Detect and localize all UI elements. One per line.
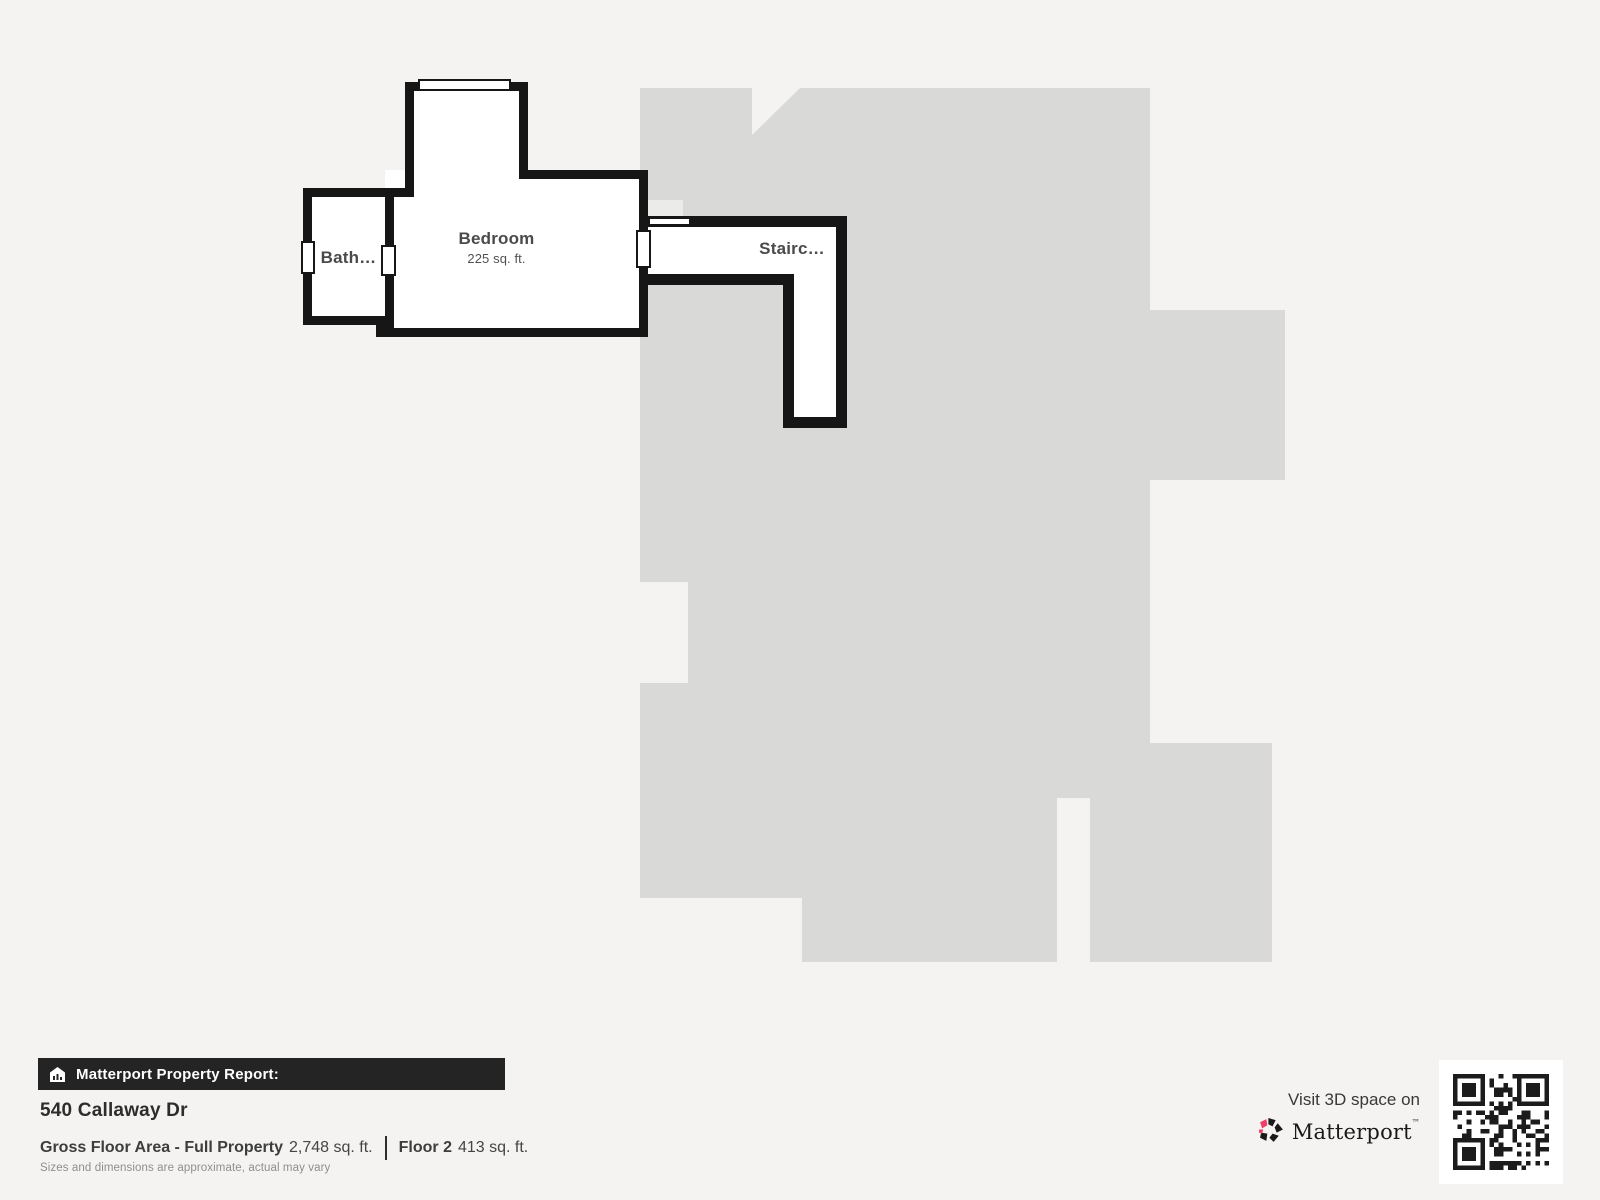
trademark-mark: ™ xyxy=(1412,1118,1420,1127)
gross-area-label: Gross Floor Area - Full Property xyxy=(40,1139,283,1157)
property-address: 540 Callaway Dr xyxy=(40,1100,188,1122)
bedroom-window xyxy=(418,79,511,91)
brand-text: Matterport xyxy=(1292,1120,1412,1144)
staircase-door-opening xyxy=(636,230,651,268)
wall xyxy=(376,316,394,337)
report-banner-title: Matterport Property Report: xyxy=(76,1066,279,1083)
qr-code-card xyxy=(1439,1060,1563,1184)
property-report-page: Bath… Bedroom 225 sq. ft. Stairc… Matter… xyxy=(0,0,1600,1200)
matterport-wordmark: Matterport™ xyxy=(1292,1118,1420,1144)
wall xyxy=(303,188,413,197)
wall xyxy=(519,170,648,179)
matterport-logo: Matterport™ xyxy=(1258,1117,1420,1144)
floor-2-plan: Bath… Bedroom 225 sq. ft. Stairc… xyxy=(0,0,1600,1200)
qr-code xyxy=(1453,1074,1549,1170)
room-name: Bedroom xyxy=(365,229,628,249)
wall xyxy=(644,274,794,285)
room-area: 225 sq. ft. xyxy=(365,252,628,267)
report-banner: Matterport Property Report: xyxy=(38,1058,505,1090)
floor-area-value: 413 sq. ft. xyxy=(458,1139,528,1157)
wall xyxy=(783,274,794,417)
wall xyxy=(405,82,414,197)
wall xyxy=(519,82,528,179)
matterport-pinwheel-icon xyxy=(1258,1117,1285,1144)
size-disclaimer: Sizes and dimensions are approximate, ac… xyxy=(40,1162,330,1174)
house-icon xyxy=(50,1067,65,1082)
gross-area-value: 2,748 sq. ft. xyxy=(289,1139,373,1157)
visit-3d-text: Visit 3D space on xyxy=(1288,1090,1420,1110)
room-label-staircase: Stairc… xyxy=(692,239,892,259)
floor-area-line: Gross Floor Area - Full Property 2,748 s… xyxy=(40,1136,528,1160)
divider xyxy=(385,1136,387,1160)
room-label-bedroom: Bedroom 225 sq. ft. xyxy=(365,229,628,266)
wall xyxy=(376,328,648,337)
staircase-window xyxy=(649,218,690,225)
wall xyxy=(783,417,847,428)
floor-label: Floor 2 xyxy=(399,1139,452,1157)
bedroom-bay-interior xyxy=(405,82,528,188)
3d-space-promo: Visit 3D space on Matterport™ xyxy=(1248,1090,1420,1144)
